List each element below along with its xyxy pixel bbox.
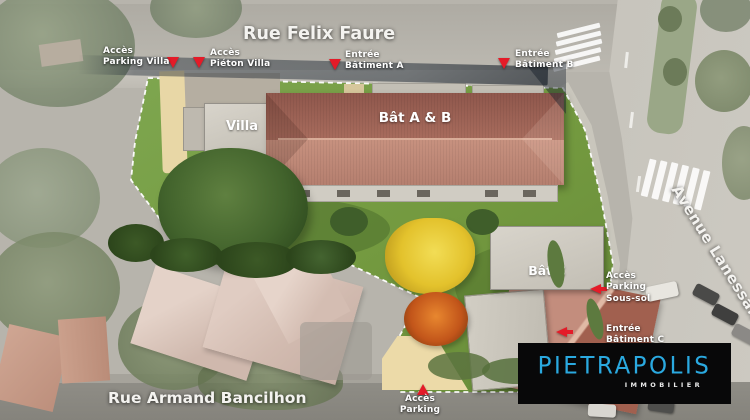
hedge <box>428 352 490 380</box>
street-name-rue-armand-bancilhon: Rue Armand Bancilhon <box>108 389 307 407</box>
hedge <box>150 238 222 272</box>
label-acces-parking-sous-sol: Accès Parking Sous-sol <box>606 271 650 305</box>
building-bat-ab-facade <box>274 185 558 202</box>
logo-tagline-text: IMMOBILIER <box>518 381 731 389</box>
building-bat-ab: Bât A & B <box>266 93 564 185</box>
tree-small <box>330 207 368 236</box>
label-entree-batiment-a: Entrée Bâtiment A <box>345 50 404 73</box>
building-bat-c-label: Bât C <box>491 263 603 278</box>
tree-orange <box>404 292 468 346</box>
entrance-pad <box>344 84 364 93</box>
building-bat-ab-label: Bât A & B <box>266 110 564 126</box>
street-name-rue-felix-faure: Rue Felix Faure <box>243 24 395 44</box>
car <box>588 403 617 417</box>
marker-acces-pieton-villa <box>193 57 205 68</box>
logo-brand-text: PIETRAPOLIS <box>518 352 731 379</box>
marker-entree-batiment-b <box>498 58 510 69</box>
pietrapolis-logo: PIETRAPOLIS IMMOBILIER <box>518 343 731 404</box>
label-entree-batiment-b: Entrée Bâtiment B <box>515 49 574 72</box>
site-plan-image: Villa Bât A & B Bât C <box>0 0 750 420</box>
tree-small <box>466 209 499 235</box>
marker-entree-batiment-a <box>329 59 341 70</box>
hedge <box>286 240 356 274</box>
marker-entree-batiment-c-tail <box>566 330 573 334</box>
label-acces-parking-villa: Accès Parking Villa <box>103 46 170 69</box>
label-acces-pieton-villa: Accès Piéton Villa <box>210 48 270 71</box>
label-acces-parking-bottom: Accès Parking <box>390 394 450 417</box>
